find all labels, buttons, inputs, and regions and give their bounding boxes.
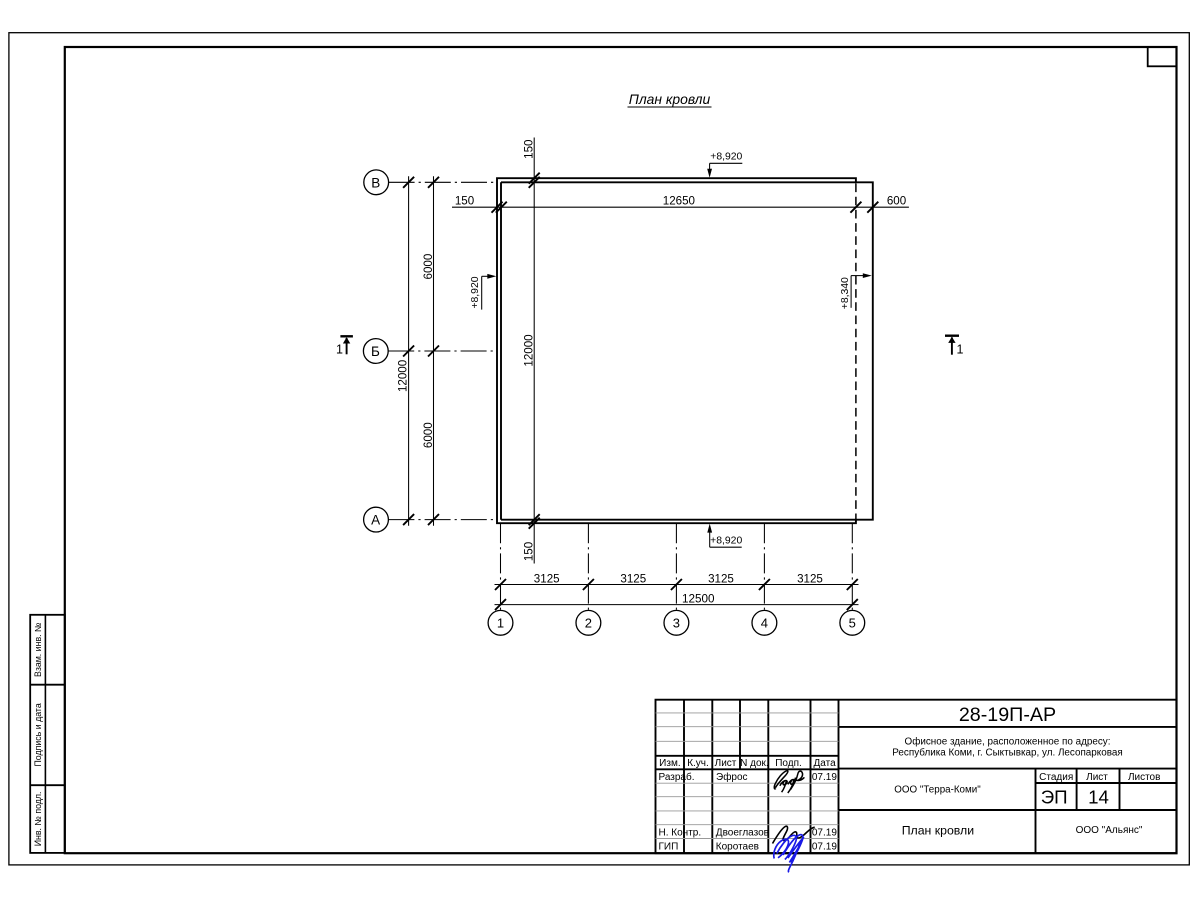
svg-text:Стадия: Стадия [1039, 772, 1073, 783]
svg-text:А: А [371, 513, 380, 528]
svg-text:600: 600 [887, 195, 906, 208]
svg-text:Взам. инв. №: Взам. инв. № [33, 623, 43, 678]
svg-text:1: 1 [336, 342, 343, 356]
svg-text:150: 150 [455, 195, 474, 208]
svg-text:+8,920: +8,920 [470, 276, 481, 308]
svg-text:Подп.: Подп. [775, 758, 802, 769]
svg-text:07.19: 07.19 [812, 827, 837, 838]
svg-text:3125: 3125 [534, 573, 560, 586]
svg-text:ООО "Альянс": ООО "Альянс" [1076, 825, 1143, 836]
svg-text:6000: 6000 [422, 422, 435, 448]
svg-text:План кровли: План кровли [629, 91, 711, 107]
svg-text:Двоеглазов: Двоеглазов [716, 827, 769, 838]
svg-text:3125: 3125 [797, 573, 823, 586]
svg-text:07.19: 07.19 [812, 772, 837, 783]
svg-text:Эфрос: Эфрос [716, 771, 748, 783]
svg-text:Н. Контр.: Н. Контр. [659, 827, 702, 838]
svg-text:Коротаев: Коротаев [716, 841, 759, 852]
svg-text:2: 2 [585, 616, 592, 631]
svg-text:В: В [371, 175, 380, 190]
svg-text:План кровли: План кровли [902, 823, 975, 837]
svg-text:1: 1 [957, 342, 964, 356]
svg-text:+8,920: +8,920 [710, 536, 742, 547]
svg-text:5: 5 [849, 616, 856, 631]
svg-text:12000: 12000 [396, 360, 409, 392]
svg-text:Б: Б [371, 344, 380, 359]
svg-text:150: 150 [522, 140, 535, 159]
svg-text:Инв. № подл.: Инв. № подл. [33, 792, 43, 847]
svg-text:3125: 3125 [620, 573, 646, 586]
svg-text:+8,920: +8,920 [710, 152, 742, 163]
svg-text:3125: 3125 [708, 573, 734, 586]
svg-text:14: 14 [1088, 786, 1109, 807]
svg-text:+8,340: +8,340 [840, 277, 851, 309]
svg-text:150: 150 [522, 542, 535, 561]
svg-text:12650: 12650 [663, 195, 695, 208]
svg-text:12000: 12000 [522, 334, 535, 366]
svg-text:4: 4 [761, 616, 768, 631]
svg-text:07.19: 07.19 [812, 841, 837, 852]
svg-text:Офисное здание, расположенное: Офисное здание, расположенное по адресу: [905, 737, 1111, 748]
svg-text:N док.: N док. [740, 758, 769, 769]
svg-text:Подпись и дата: Подпись и дата [33, 703, 43, 766]
svg-text:Дата: Дата [814, 758, 837, 769]
svg-text:Разраб.: Разраб. [659, 771, 695, 783]
svg-text:Лист: Лист [1086, 772, 1108, 783]
svg-text:1: 1 [497, 616, 504, 631]
svg-text:К.уч.: К.уч. [687, 758, 709, 769]
svg-text:3: 3 [673, 616, 680, 631]
svg-text:28-19П-АР: 28-19П-АР [959, 704, 1056, 726]
svg-text:ЭП: ЭП [1041, 786, 1068, 807]
svg-text:ГИП: ГИП [659, 841, 679, 852]
svg-text:ООО "Терра-Коми": ООО "Терра-Коми" [894, 784, 981, 795]
svg-text:Республика Коми, г. Сыктывкар,: Республика Коми, г. Сыктывкар, ул. Лесоп… [892, 748, 1122, 759]
svg-text:Листов: Листов [1128, 772, 1161, 783]
svg-text:Изм.: Изм. [659, 758, 680, 769]
svg-text:Лист: Лист [715, 758, 737, 769]
svg-text:6000: 6000 [422, 254, 435, 280]
svg-text:12500: 12500 [682, 593, 715, 606]
